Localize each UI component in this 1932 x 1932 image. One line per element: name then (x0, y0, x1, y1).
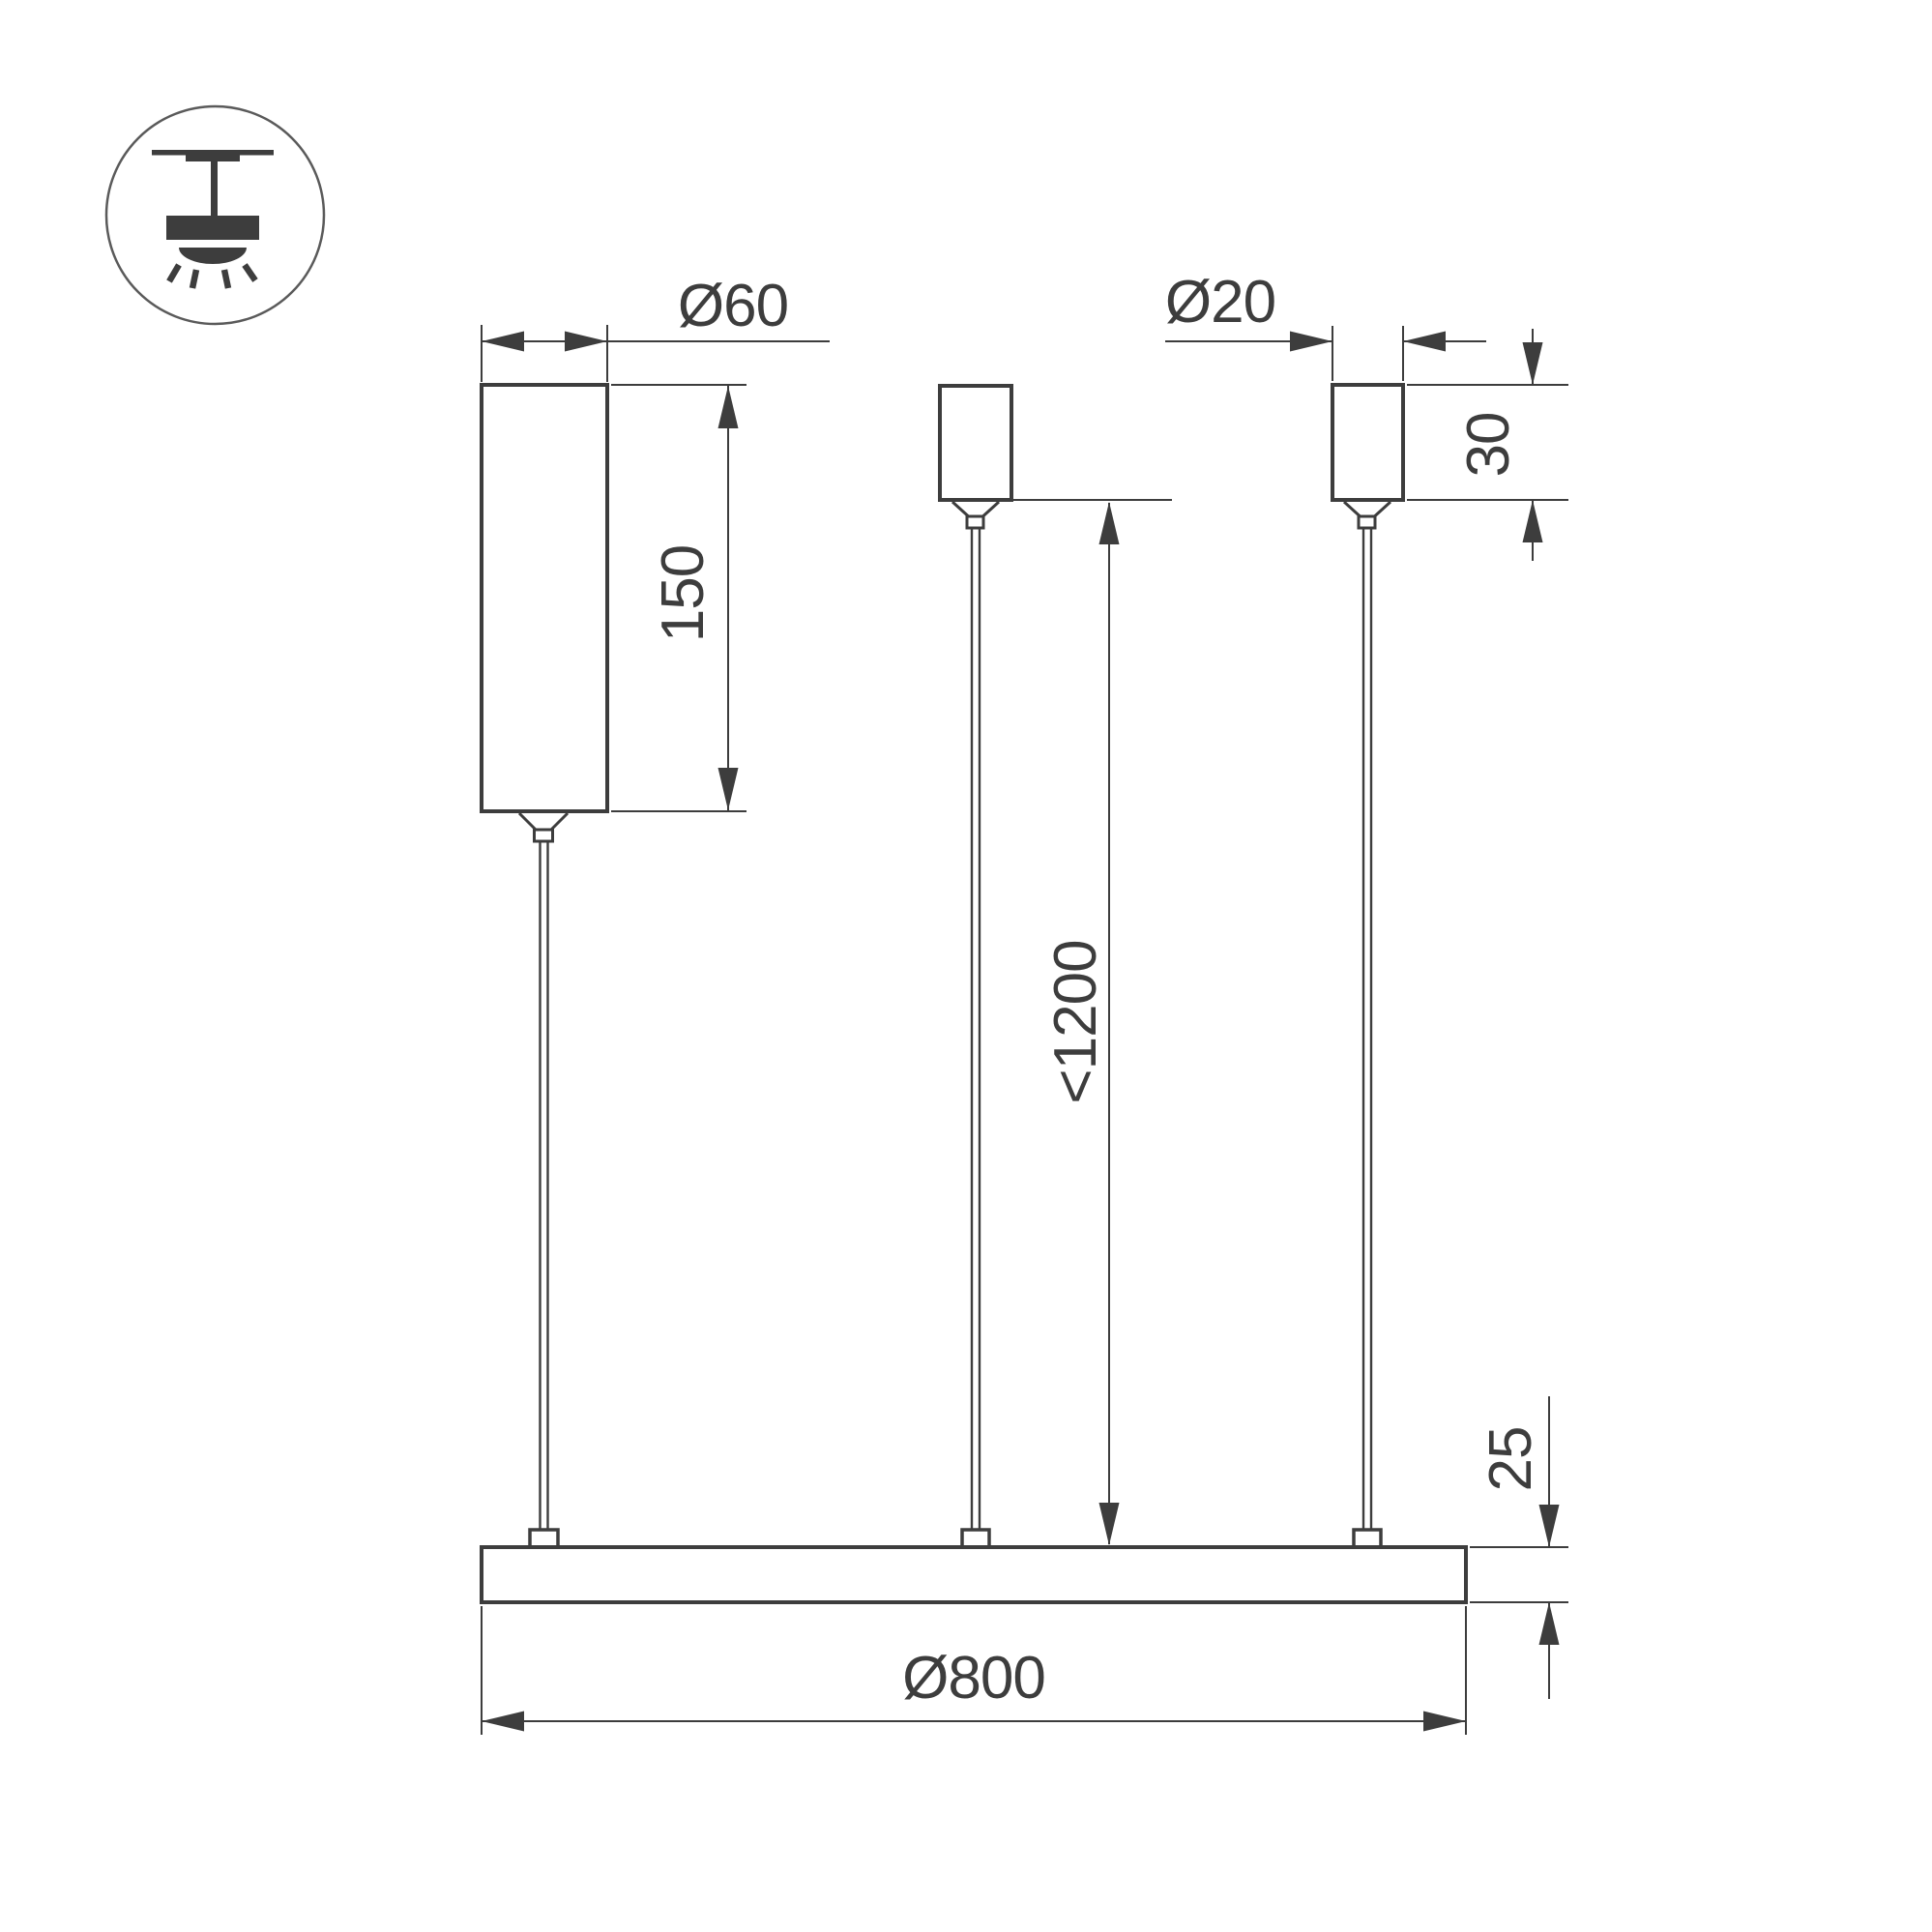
dim-arrow-left (482, 332, 524, 352)
middle-canopy (940, 386, 1011, 500)
driver-funnel (519, 813, 568, 830)
dim-extension-lines (482, 325, 607, 382)
middle-wire-fitting (962, 1530, 989, 1547)
right-suspension-wire (1363, 528, 1371, 1530)
driver-wire-gripper (535, 830, 553, 841)
right-suspension (1332, 385, 1403, 1547)
dim-arrow-right (1423, 1712, 1466, 1732)
dim-arrow-up (1523, 500, 1543, 542)
driver-wire-fitting (530, 1530, 558, 1547)
dim-arrow-down (1523, 342, 1543, 385)
icon-diffuser (179, 248, 247, 264)
right-wire-fitting (1354, 1530, 1381, 1547)
dim-bar-diameter: Ø800 (482, 1606, 1466, 1735)
dim-arrow-up (718, 386, 739, 428)
dim-label-canopy-height: 30 (1455, 413, 1522, 478)
technical-drawing-page: Ø60 150 Ø20 30 <1200 25 (0, 0, 1932, 1932)
dim-arrow-left (1290, 332, 1332, 352)
dim-arrow-right (565, 332, 607, 352)
dim-arrow-down (1099, 1503, 1120, 1545)
ceiling-pendant-icon (106, 106, 324, 324)
dim-driver-diameter: Ø60 (482, 273, 830, 382)
middle-funnel (952, 502, 999, 516)
dim-label-bar-thickness: 25 (1478, 1427, 1544, 1492)
dim-arrow-down (1539, 1505, 1560, 1547)
dim-extension-lines (1470, 1547, 1568, 1602)
icon-ceiling-line (152, 150, 274, 156)
dim-canopy-height: 30 (1407, 329, 1568, 561)
right-funnel (1344, 502, 1390, 516)
middle-suspension-wire (972, 528, 980, 1530)
dim-label-driver-height: 150 (650, 545, 717, 642)
driver-cylinder (482, 385, 607, 811)
dim-bar-thickness: 25 (1470, 1396, 1568, 1699)
dim-label-suspension-length: <1200 (1042, 940, 1109, 1103)
pendant-bar (482, 1547, 1466, 1602)
dim-suspension-length: <1200 (1011, 500, 1172, 1545)
icon-canopy (186, 155, 240, 161)
dim-arrow-up (1539, 1602, 1560, 1645)
dim-canopy-diameter: Ø20 (1165, 269, 1486, 381)
icon-stem (211, 161, 218, 217)
right-canopy (1332, 385, 1403, 500)
middle-suspension (940, 386, 1011, 1547)
right-wire-gripper (1359, 516, 1375, 528)
dim-arrow-right (1403, 332, 1446, 352)
dim-driver-height: 150 (611, 385, 746, 811)
driver-suspension-wire (541, 841, 548, 1530)
dim-label-canopy-diameter: Ø20 (1165, 269, 1275, 336)
icon-lamp-body (166, 216, 259, 240)
dim-arrow-down (718, 768, 739, 810)
dim-label-driver-diameter: Ø60 (678, 273, 788, 339)
icon-light-rays (169, 265, 255, 288)
dim-label-bar-diameter: Ø800 (902, 1645, 1045, 1712)
dim-arrow-up (1099, 502, 1120, 544)
pendant-lamp-dimension-drawing: Ø60 150 Ø20 30 <1200 25 (0, 0, 1932, 1932)
driver-assembly (482, 385, 607, 1547)
dim-extension-lines (1332, 326, 1403, 381)
middle-wire-gripper (967, 516, 983, 528)
dim-arrow-left (482, 1712, 524, 1732)
